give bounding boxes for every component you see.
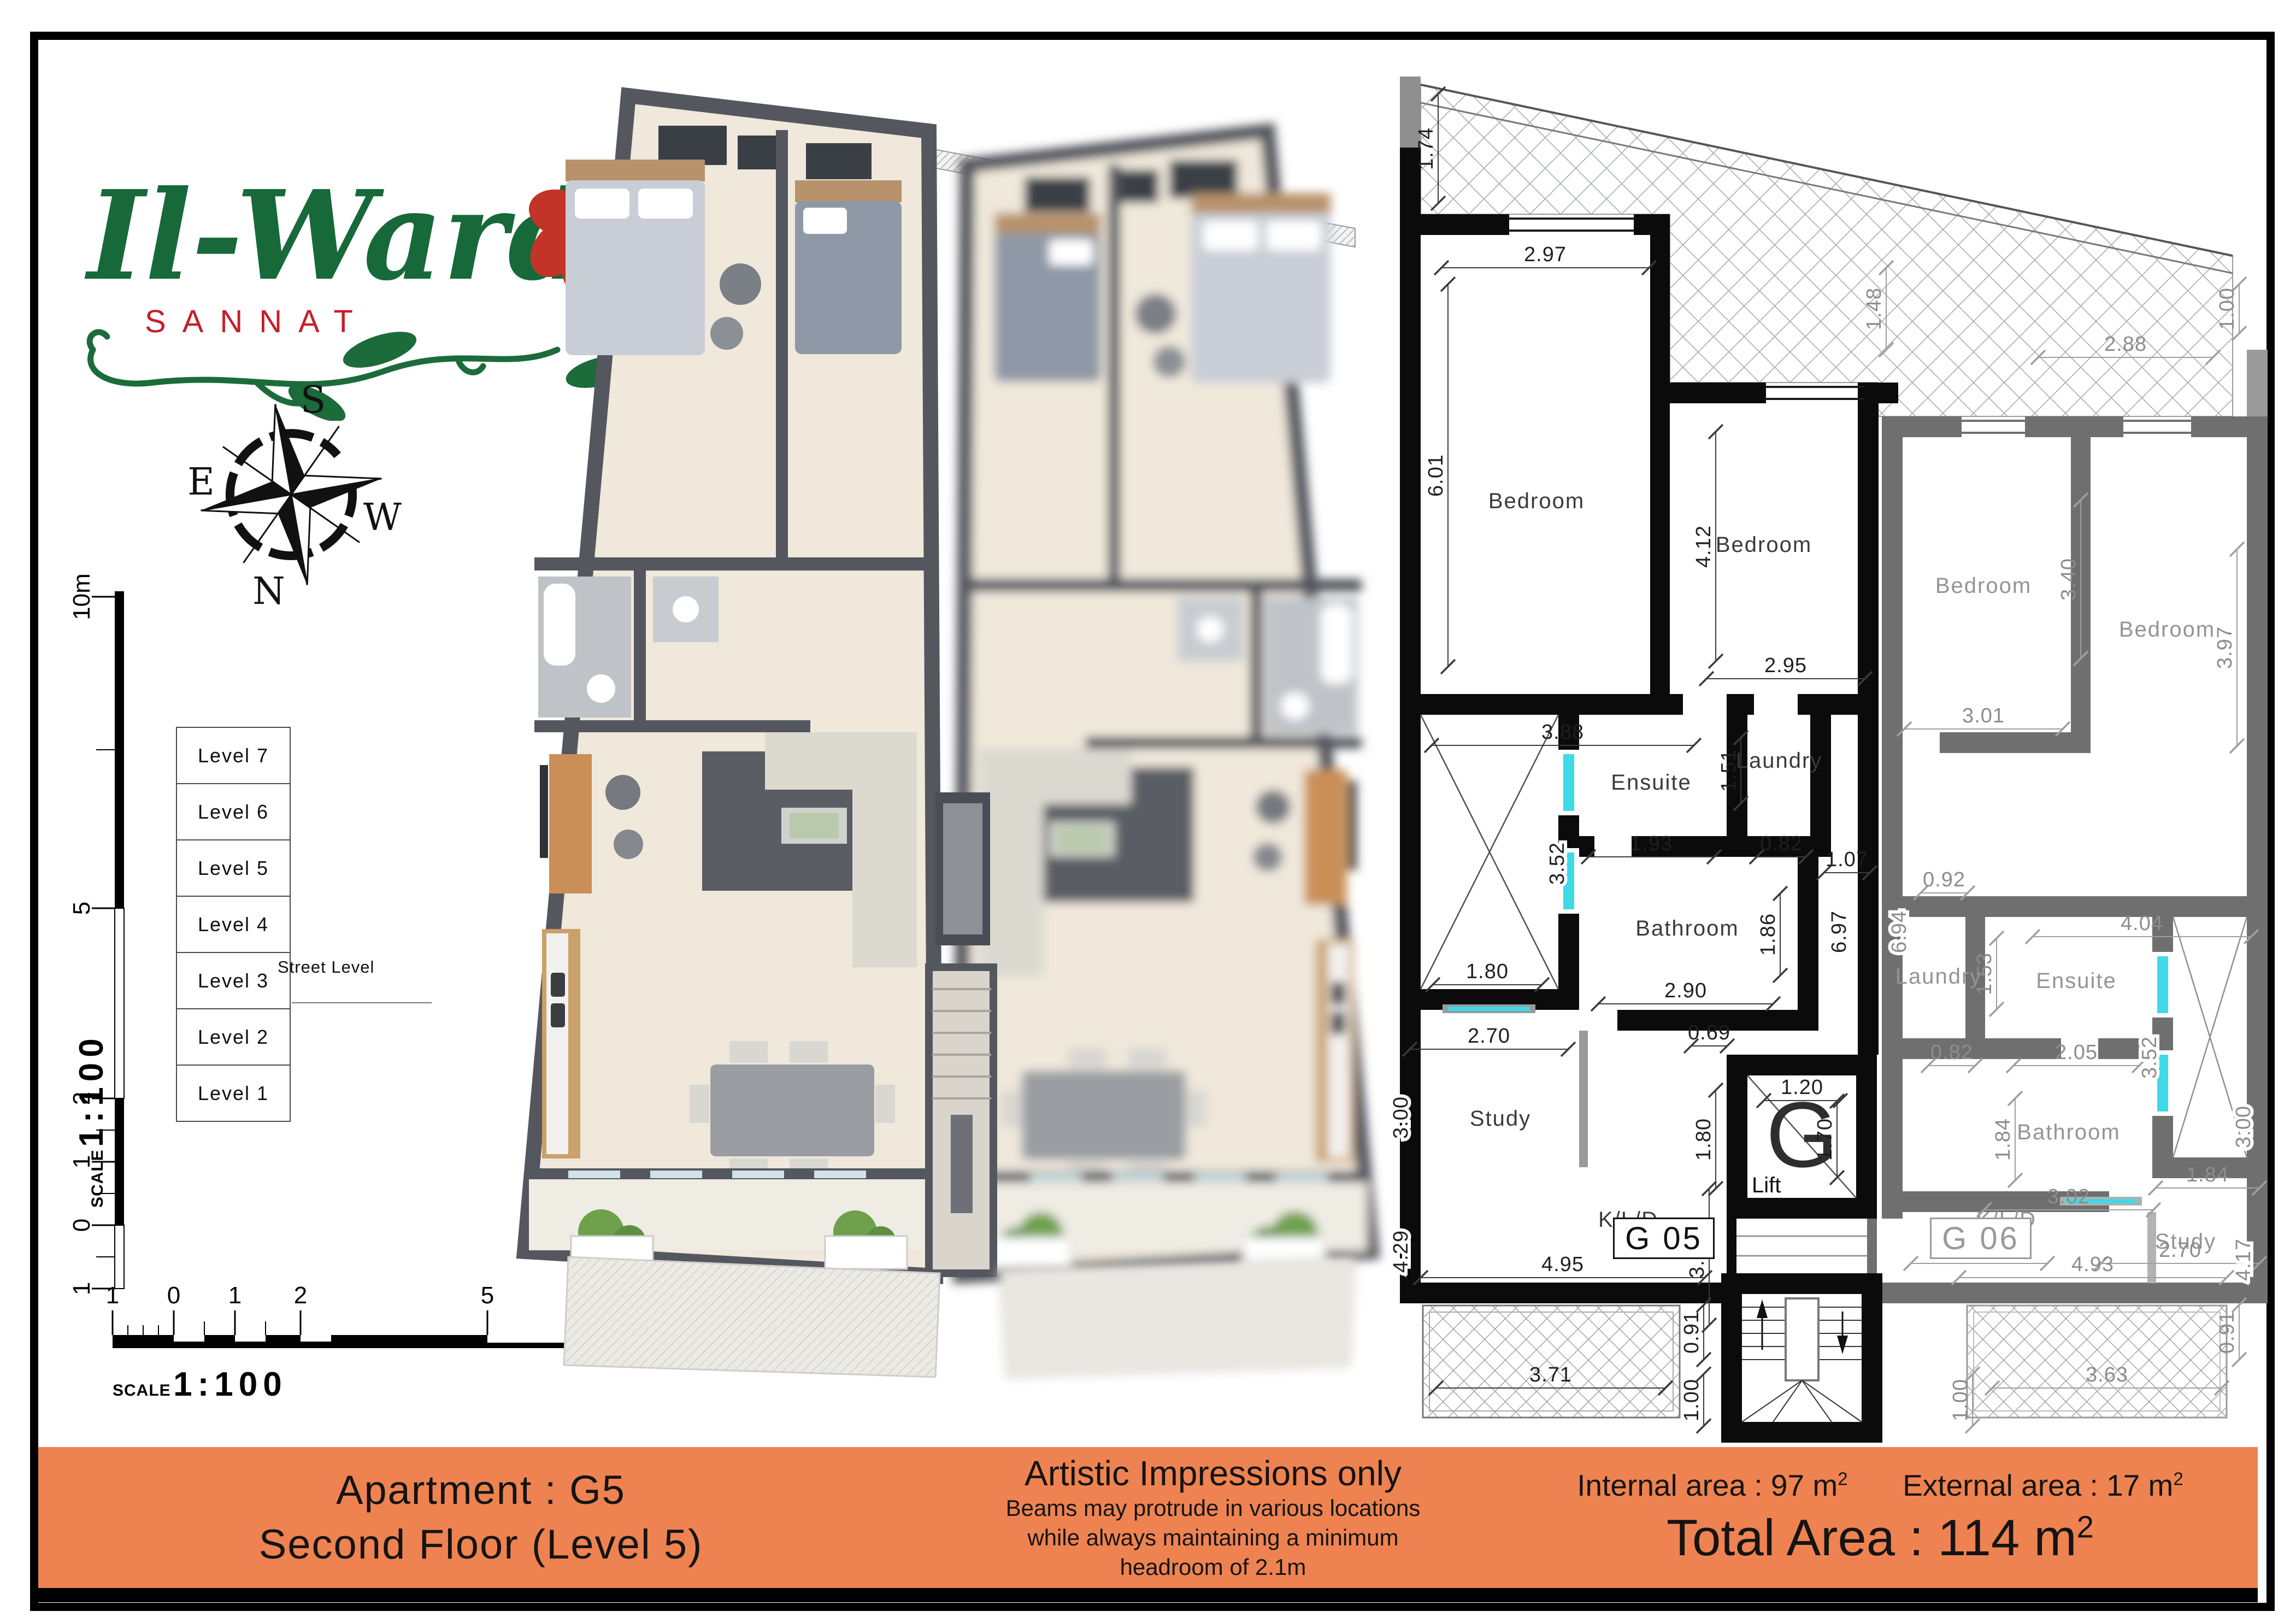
unit-tag-g05: G 05 [1613,1218,1715,1259]
footer-apartment: Apartment : G5 Second Floor (Level 5) [38,1447,923,1588]
internal-area-sup: 2 [1838,1469,1847,1489]
dim-46-4-17: 4.17 [2232,1238,2255,1281]
balcony-right [1967,1306,2227,1418]
room-label-bedroom: Bedroom [1716,533,1812,557]
dim-0-1-74: 1.74 [1415,127,1438,170]
dim-48-0-91: 0.91 [2216,1311,2239,1354]
dim-49-1-00: 1.00 [1949,1379,1972,1421]
dim-43-2-70: 2.70 [2159,1239,2201,1262]
dim-39-3-52: 3.52 [2138,1036,2161,1079]
apartment-title: Apartment : G5 [336,1467,626,1513]
dim-3-4-12: 4.12 [1692,525,1715,568]
room-label-bathroom: Bathroom [2017,1120,2120,1144]
dim-10-1-07: 1.07 [1826,848,1868,871]
g06-walls [1882,350,2268,1303]
apartment-floor: Second Floor (Level 5) [259,1521,703,1568]
dim-12-2-90: 2.90 [1664,979,1707,1002]
dim-23-0-91: 0.91 [1680,1311,1703,1354]
internal-area: Internal area : 97 m [1577,1468,1838,1502]
dim-44-1-84: 1.84 [2186,1163,2229,1186]
dim-28-1-48: 1.48 [1863,287,1886,330]
dim-14-2-70: 2.70 [1468,1025,1510,1048]
dim-37-0-82: 0.82 [1930,1041,1973,1064]
notice-title: Artistic Impressions only [1025,1453,1402,1493]
dim-36-1-53: 1.53 [1973,952,1996,995]
dim-24-1-00: 1.00 [1680,1379,1703,1421]
room-label-ensuite: Ensuite [2036,969,2116,993]
dim-6-1-51: 1.51 [1717,749,1740,792]
dim-19-1-70: 1.70 [1814,1118,1836,1161]
notice-line-1: Beams may protrude in various locations [1006,1493,1421,1523]
dim-31-3-40: 3.40 [2057,558,2080,601]
dim-40-1-84: 1.84 [1992,1118,2015,1161]
room-label-bedroom: Bedroom [2119,618,2215,642]
dim-45-3-00: 3.00 [2232,1105,2255,1148]
lobby-doorways [1727,1219,1877,1273]
dim-1-2-97: 2.97 [1524,243,1567,266]
external-area-sup: 2 [2173,1469,2183,1489]
dim-15-3-00: 3.00 [1390,1096,1412,1139]
lift-label: Lift [1752,1173,1781,1197]
notice-line-2: while always maintaining a minimum [1006,1523,1421,1553]
dim-18-1-20: 1.20 [1781,1076,1823,1099]
footer-bar: Apartment : G5 Second Floor (Level 5) Ar… [38,1447,2258,1588]
room-label-bedroom: Bedroom [1935,574,2032,598]
g05-shaft [1421,715,1558,989]
dim-8-0-82: 0.82 [1760,832,1803,855]
dim-22-4-95: 4.95 [1541,1253,1584,1276]
room-label-bathroom: Bathroom [1635,916,1739,940]
notice-line-3: headroom of 2.1m [1006,1553,1421,1582]
dim-13-1-80: 1.80 [1466,960,1509,983]
dim-5-3-88: 3.88 [1541,721,1584,744]
dim-33-3-97: 3.97 [2213,626,2236,669]
room-label-bedroom: Bedroom [1488,489,1585,513]
dim-25-3-71: 3.71 [1529,1363,1572,1386]
dim-47-4-93: 4.93 [2071,1253,2114,1276]
dim-9-3-52: 3.52 [1546,842,1569,885]
dim-50-3-63: 3.63 [2086,1363,2128,1386]
total-area: Total Area : 114 m [1667,1509,2077,1566]
footer-bottom-strip [38,1588,2258,1602]
dim-30-1-00: 1.00 [2216,287,2239,330]
footer-areas: Internal area : 97 m2 External area : 17… [1503,1447,2258,1588]
dim-16-4-29: 4.29 [1390,1230,1412,1273]
room-label-ensuite: Ensuite [1611,771,1691,795]
dim-41-3-02: 3.02 [2047,1185,2090,1208]
total-area-sup: 2 [2077,1510,2094,1544]
dim-29-2-88: 2.88 [2104,333,2147,356]
dim-38-2-05: 2.05 [2055,1041,2098,1064]
floor-plan-2d: G Lift BedroomBedroomEns [0,0,2296,1623]
unit-tag-g06: G 06 [1930,1218,2032,1259]
dim-26-6-97: 6.97 [1828,910,1851,953]
balcony-left [1423,1306,1680,1418]
room-label-study: Study [1470,1107,1531,1131]
dim-4-2-95: 2.95 [1764,654,1807,677]
dim-11-1-86: 1.86 [1757,913,1780,956]
stairs [1721,1273,1882,1443]
external-area: External area : 17 m [1903,1468,2173,1502]
dim-34-4-04: 4.04 [2121,912,2163,935]
dim-17-0-69: 0.69 [1688,1021,1730,1044]
dim-35-0-92: 0.92 [1923,868,1965,891]
dim-7-1-93: 1.93 [1630,832,1673,855]
dim-27-6-94: 6.94 [1888,910,1911,953]
footer-notice: Artistic Impressions only Beams may prot… [923,1447,1503,1588]
room-label-laundry: Laundry [1736,749,1823,773]
dim-32-3-01: 3.01 [1962,704,2005,727]
dim-2-6-01: 6.01 [1424,454,1447,497]
room-label-laundry: Laundry [1895,965,1982,989]
dim-20-1-80: 1.80 [1692,1118,1715,1161]
